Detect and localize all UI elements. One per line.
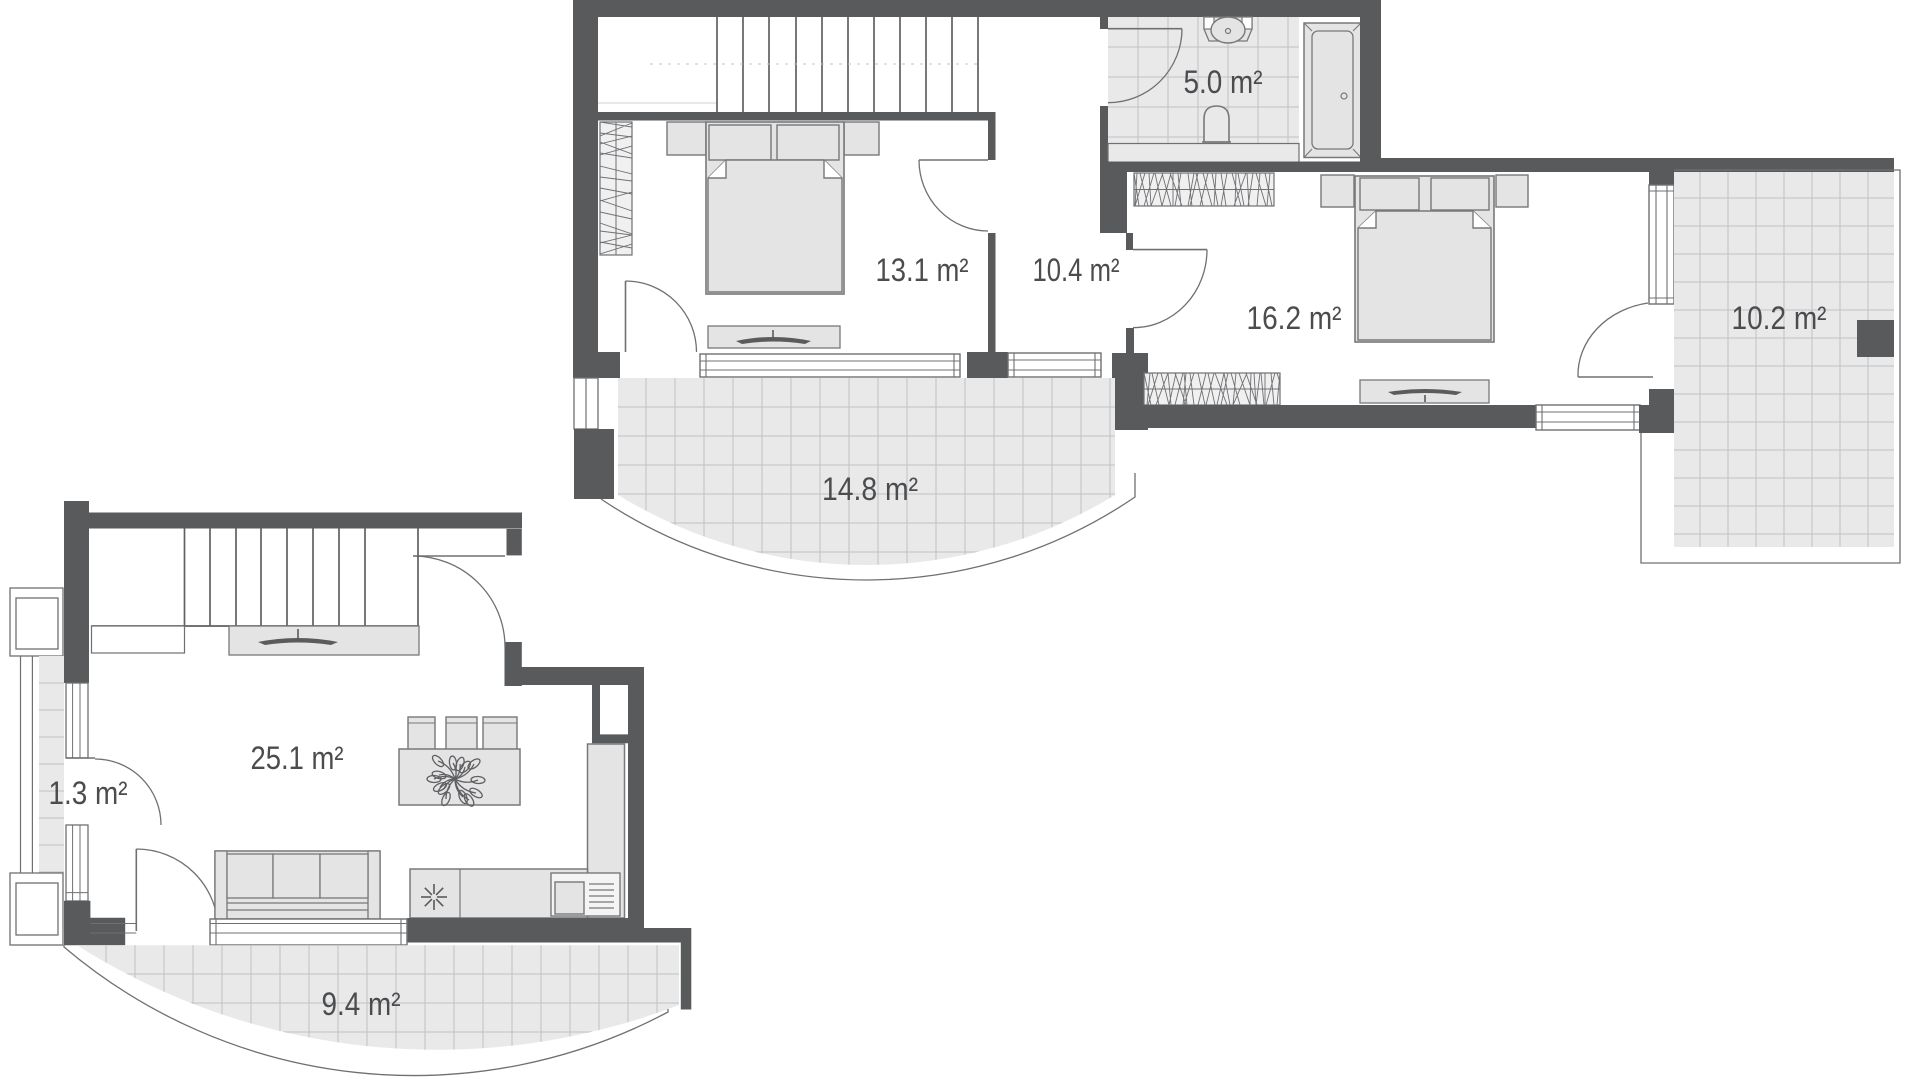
svg-text:14.8 m²: 14.8 m² <box>822 471 918 507</box>
svg-text:9.4 m²: 9.4 m² <box>322 986 401 1022</box>
svg-text:10.2 m²: 10.2 m² <box>1732 300 1827 336</box>
svg-text:25.1 m²: 25.1 m² <box>251 740 344 776</box>
svg-text:13.1 m²: 13.1 m² <box>876 252 969 288</box>
svg-text:10.4 m²: 10.4 m² <box>1033 252 1120 288</box>
svg-text:16.2 m²: 16.2 m² <box>1247 300 1342 336</box>
svg-text:5.0 m²: 5.0 m² <box>1184 64 1263 100</box>
svg-text:1.3 m²: 1.3 m² <box>49 775 128 811</box>
